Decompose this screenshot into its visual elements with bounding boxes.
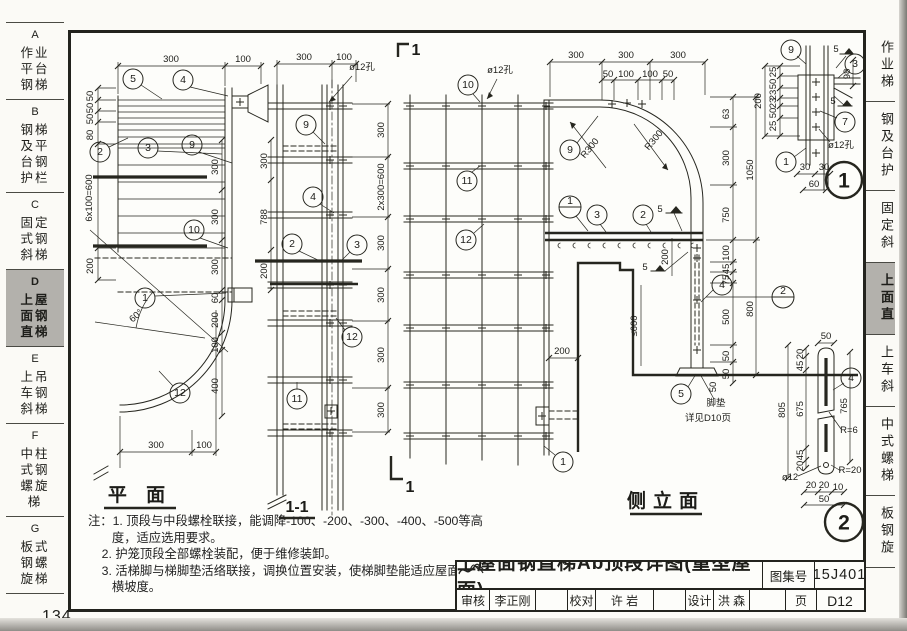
dim-label: 300 <box>376 402 387 418</box>
detail-number: 1 <box>838 170 850 193</box>
dim-label: 80 <box>85 130 96 141</box>
note-line: 度，适应选用要求。 <box>88 531 223 545</box>
dim-label: 300 <box>376 287 387 303</box>
callout-circle: 3 <box>145 142 151 154</box>
view-label-plan: 平 面 <box>108 485 172 506</box>
dim-label: 10 <box>833 482 844 493</box>
drawing-title: 上屋面钢直梯Ab顶段详图(重型屋面) <box>457 562 763 588</box>
callout-circle: 5 <box>130 73 136 85</box>
weld-label: 5 <box>830 96 835 107</box>
dim-label: 50 <box>819 494 830 505</box>
page-number-value: D12 <box>817 590 863 611</box>
dim-label: 300 <box>259 153 270 169</box>
designer-signature <box>750 590 786 611</box>
note-line: 注：1. 顶段与中段螺栓联接，能调降-100、-200、-300、-400、-5… <box>88 514 483 528</box>
dim-label: 300 <box>163 54 179 65</box>
callout-circle: 4 <box>848 372 854 384</box>
dim-label: 200 <box>660 249 671 265</box>
dim-label: 805 <box>777 402 788 418</box>
hole-label: ø12 <box>782 472 798 483</box>
dim-label: 50 <box>721 369 732 380</box>
callout-circle: 1 <box>142 292 148 304</box>
dim-label: 50 <box>721 351 732 362</box>
cut-mark-bottom: 1 <box>406 479 415 496</box>
dim-label: 63 <box>721 109 732 120</box>
callout-circle: 9 <box>303 119 309 131</box>
designer-label: 设计 <box>686 590 714 611</box>
atlas-number-label: 图集号 <box>763 562 815 588</box>
view-label-elevation: 侧立面 <box>627 489 705 512</box>
atlas-number-value: 15J401 <box>815 562 864 588</box>
callout-circle: 12 <box>460 234 472 246</box>
callout-circle: 11 <box>292 393 303 405</box>
dim-label: 788 <box>259 209 270 225</box>
dim-label: 675 <box>795 401 806 417</box>
callout-circle: 4 <box>310 191 316 203</box>
dim-label: 300 <box>670 50 686 61</box>
dim-label: 765 <box>839 398 850 414</box>
designer-name: 洪 森 <box>714 590 750 611</box>
drawing-notes: 注：1. 顶段与中段螺栓联接，能调降-100、-200、-300、-400、-5… <box>88 513 484 596</box>
callout-circle: 10 <box>188 224 200 236</box>
dim-label: 45 <box>721 264 732 275</box>
hole-label: ø12孔 <box>349 62 375 73</box>
callout-circle: 12 <box>174 387 186 399</box>
callout-circle: 9 <box>567 144 573 156</box>
reviewer-label: 审核 <box>457 590 490 611</box>
dim-label: 25 <box>768 121 779 132</box>
checker-signature <box>654 590 686 611</box>
dim-label: 200 <box>753 93 764 109</box>
dim-label: 200 <box>210 312 221 328</box>
dim-label: 300 <box>148 440 164 451</box>
dim-label: 1050 <box>745 159 756 180</box>
dim-label: 800 <box>745 301 756 317</box>
callout-circle: 4 <box>180 74 186 86</box>
dim-label: 300 <box>210 259 221 275</box>
dim-label: 300 <box>568 50 584 61</box>
radius-label: R300 <box>579 136 602 160</box>
callout-circle: 7 <box>842 116 848 128</box>
dim-label: 500 <box>721 309 732 325</box>
detail-ref-1: 1 <box>567 195 573 207</box>
note-line: 横坡度。 <box>88 580 161 594</box>
dim-label: 50 <box>85 114 96 125</box>
callout-circle: 9 <box>788 44 794 56</box>
dim-label: 45 <box>795 361 806 372</box>
dim-label: 50 <box>85 103 96 114</box>
dim-label: 200 <box>85 258 96 274</box>
callout-circle: 9 <box>189 139 195 151</box>
dim-label: 100 <box>196 440 212 451</box>
dim-label: 300 <box>376 347 387 363</box>
dim-label: 300 <box>376 122 387 138</box>
dim-label: 30 <box>800 162 811 173</box>
dim-label: 400 <box>210 378 221 394</box>
dim-label: 60 <box>809 179 820 190</box>
reviewer-name: 李正刚 <box>490 590 536 611</box>
callout-circle: 3 <box>852 58 858 70</box>
page-edge-shadow-bottom <box>0 618 907 631</box>
dim-label: 50 <box>603 69 614 80</box>
dim-label: 750 <box>721 207 732 223</box>
dim-label: 200 <box>259 263 270 279</box>
dim-label: 300 <box>721 150 732 166</box>
section-1-1-view: 300 100 300 788 200 300 2x300=600 300 30… <box>255 52 391 518</box>
dim-label: 20 <box>795 349 806 360</box>
dim-label: 200 <box>554 346 570 357</box>
dim-label: 25 <box>768 67 779 78</box>
hole-label: ø12孔 <box>828 140 854 151</box>
dim-label: 2x300=600 <box>376 163 387 210</box>
callout-circle: 5 <box>678 388 684 400</box>
dim-label: 300 <box>376 235 387 251</box>
callout-circle: 2 <box>640 209 646 221</box>
dim-label: 50 <box>768 108 779 119</box>
page-label: 页 <box>786 590 817 611</box>
dim-label: 300 <box>618 50 634 61</box>
detail-1: 25 50 23 23 50 25 200 98 30 30 60 5 5 9 … <box>753 40 865 198</box>
dim-label: ≤600 <box>629 315 640 336</box>
callout-circle: 11 <box>462 175 473 187</box>
dim-label: 100 <box>618 69 634 80</box>
dim-label: 23 <box>768 98 779 109</box>
reviewer-signature <box>536 590 568 611</box>
dim-label: 100 <box>210 337 221 353</box>
page-edge-shadow-right <box>899 0 907 631</box>
checker-name: 许 岩 <box>596 590 654 611</box>
scanned-atlas-page: { "page": {"number": "134"}, "sidebar": … <box>0 0 907 631</box>
title-block: 上屋面钢直梯Ab顶段详图(重型屋面) 图集号 15J401 审核 李正刚 校对 … <box>455 560 866 612</box>
detail-number: 2 <box>838 512 850 535</box>
dim-label: 60 <box>210 293 221 304</box>
angle-label: 60° <box>127 307 145 325</box>
callout-circle: 4 <box>719 279 725 291</box>
dim-label: 50 <box>768 79 779 90</box>
weld-label: 5 <box>642 262 647 273</box>
callout-circle: 1 <box>560 456 566 468</box>
dim-label: 300 <box>210 209 221 225</box>
callout-circle: 10 <box>462 79 474 91</box>
dim-label: 50 <box>663 69 674 80</box>
callout-circle: 3 <box>594 209 600 221</box>
detail-ref-2: 2 <box>780 285 786 297</box>
note-line: 3. 活梯脚与梯脚垫活络联接，调换位置安装，使梯脚垫能适应屋面纵、 <box>88 564 484 578</box>
callout-circle: 2 <box>289 238 295 250</box>
callout-circle: 1 <box>783 156 789 168</box>
hole-label: ø12孔 <box>487 65 513 76</box>
pad-note: 详见D10页 <box>685 412 731 424</box>
dim-label: 50 <box>821 331 832 342</box>
checker-label: 校对 <box>568 590 596 611</box>
pad-note: 脚垫 <box>706 397 726 409</box>
plan-view: 300 100 50 50 50 80 6x100=600 200 300 30… <box>84 54 268 508</box>
detail-2: 50 20 45 675 45 20 805 765 R=6 R=20 ø12 … <box>777 331 863 541</box>
dim-label: 300 <box>296 52 312 63</box>
weld-label: 5 <box>657 204 662 215</box>
dim-label: 6x100=600 <box>84 174 95 221</box>
dim-label: 300 <box>210 159 221 175</box>
dim-label: R=6 <box>840 425 858 436</box>
dim-label: R=20 <box>839 465 862 476</box>
dim-label: 20 <box>795 461 806 472</box>
dim-label: 100 <box>235 54 251 65</box>
callout-circle: 12 <box>346 331 358 343</box>
dim-label: 100 <box>721 245 732 261</box>
dim-label: 45 <box>795 450 806 461</box>
weld-label: 5 <box>833 44 838 55</box>
callout-circle: 2 <box>97 146 103 158</box>
dim-label: 50 <box>85 91 96 102</box>
dim-label: 100 <box>642 69 658 80</box>
cut-mark-top: 1 <box>412 42 421 59</box>
callout-circle: 3 <box>354 239 360 251</box>
note-line: 2. 护笼顶段全部螺栓装配，便于维修装卸。 <box>88 547 337 561</box>
